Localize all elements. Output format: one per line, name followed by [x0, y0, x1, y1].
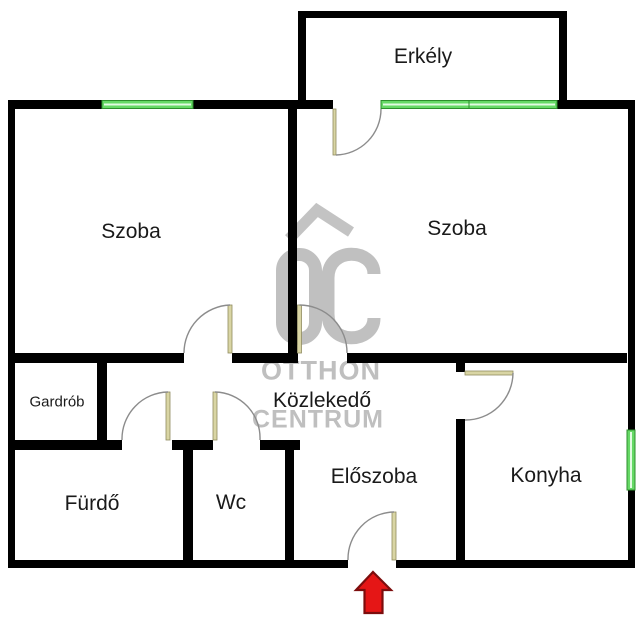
door-arc-konyha: [465, 373, 513, 420]
wall-konyha-stub: [456, 363, 465, 372]
wall-bottom-left: [8, 560, 348, 568]
wall-left: [8, 100, 15, 568]
door-leaf-wc: [213, 392, 217, 440]
wall-between-rooms: [288, 100, 297, 363]
wall-low-right: [260, 440, 300, 450]
room-label-gardrob: Gardrób: [29, 394, 84, 411]
wall-bottom-right: [396, 560, 635, 568]
room-label-wc: Wc: [216, 491, 246, 515]
door-arc-furdo: [122, 392, 168, 440]
wall-right-upper: [628, 100, 635, 430]
door-leaf-balcony: [333, 109, 336, 155]
room-label-erkely: Erkély: [394, 45, 452, 69]
wall-low-left: [15, 440, 122, 450]
wall-balcony-left: [298, 11, 306, 101]
door-leaf-konyha: [465, 371, 513, 375]
wall-right-lower: [628, 490, 635, 568]
room-label-konyha: Konyha: [510, 464, 581, 488]
wall-low-center: [172, 440, 213, 450]
room-label-kozlekedo: Közlekedő: [273, 389, 371, 413]
door-leaf-entrance: [392, 512, 396, 560]
door-arc-szoba-left: [184, 305, 230, 353]
room-label-szoba-left: Szoba: [101, 220, 161, 244]
wall-gardrob-right: [97, 363, 107, 450]
floorplan-canvas: OTTHON CENTRUM: [0, 0, 640, 624]
window-szoba-left: [102, 101, 193, 109]
entrance-arrow-icon: [356, 572, 391, 613]
floorplan-drawing: [0, 0, 640, 624]
wall-mid-right: [347, 353, 627, 363]
doors: [122, 109, 513, 560]
room-label-szoba-right: Szoba: [427, 217, 487, 241]
windows: [102, 101, 635, 491]
door-leaf-szoba-left: [228, 305, 232, 353]
wall-balcony-right: [559, 11, 567, 101]
wall-balcony-top: [298, 11, 567, 18]
door-arcs: [122, 109, 513, 560]
room-label-eloszoba: Előszoba: [331, 465, 417, 489]
door-leaf-szoba-right: [298, 305, 302, 353]
wall-konyha-left: [456, 419, 465, 560]
wall-top-left: [8, 100, 103, 109]
door-arc-entrance: [348, 512, 394, 560]
window-szoba-right: [381, 101, 557, 109]
wall-mid-left: [15, 353, 184, 363]
room-label-furdo: Fürdő: [65, 492, 120, 516]
door-leaf-furdo: [166, 392, 170, 440]
wall-mid-center: [232, 353, 298, 363]
wall-top-right: [557, 100, 635, 109]
door-arc-wc: [215, 392, 260, 440]
door-arc-szoba-right: [300, 305, 348, 353]
window-konyha: [627, 430, 635, 490]
wall-wc-eloszoba: [285, 450, 294, 560]
wall-top-middle: [193, 100, 333, 109]
wall-furdo-wc: [183, 450, 193, 560]
door-arc-balcony: [336, 109, 381, 155]
